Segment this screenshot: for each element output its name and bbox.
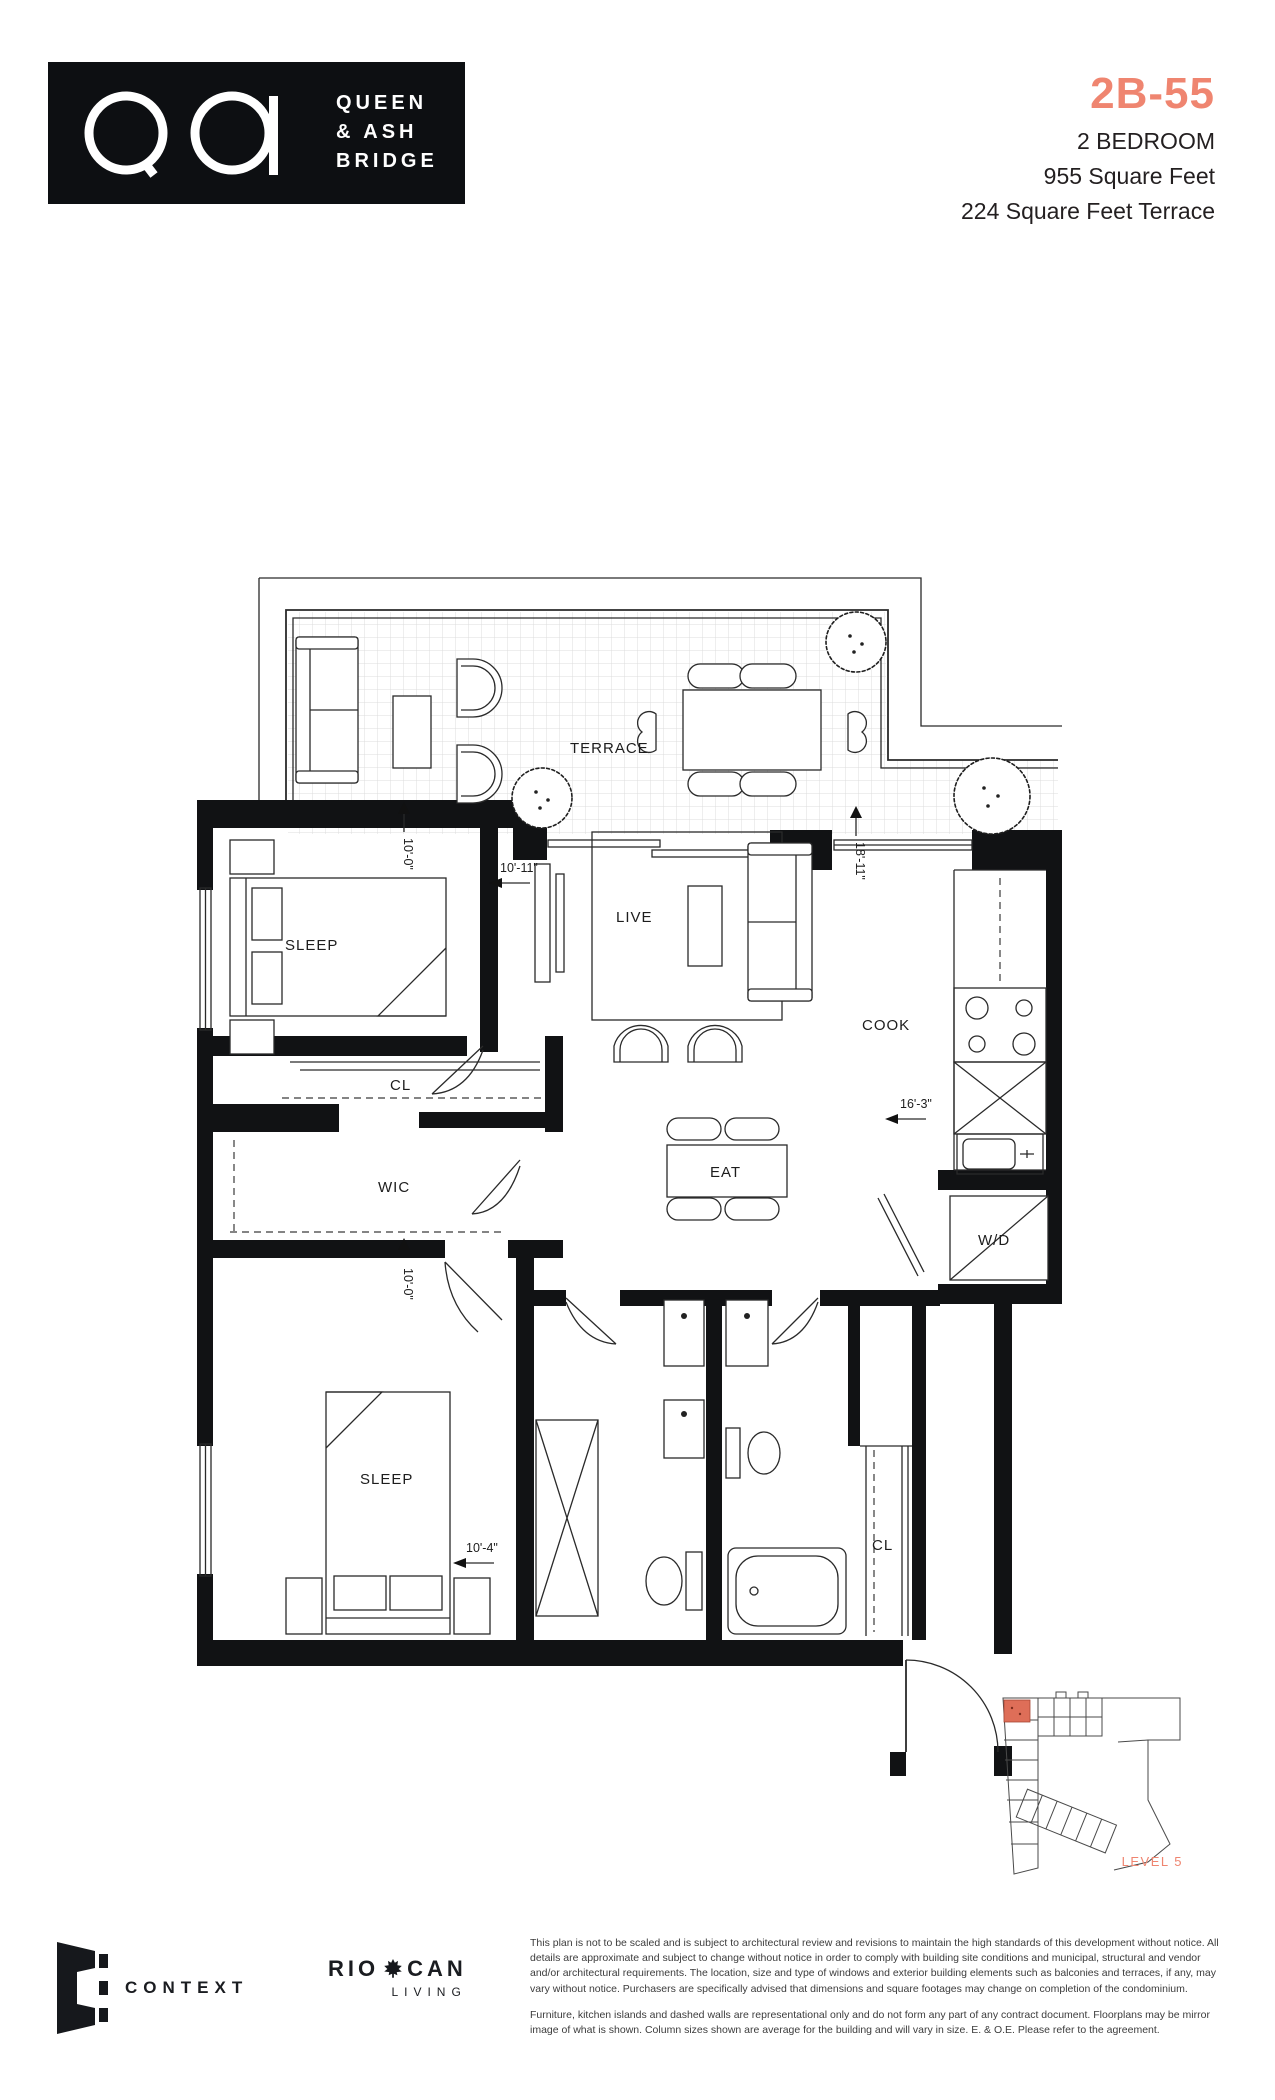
label-eat: EAT	[710, 1164, 741, 1181]
label-sleep2: SLEEP	[360, 1471, 413, 1488]
label-cl1: CL	[390, 1077, 411, 1094]
disclaimer-paragraph-2: Furniture, kitchen islands and dashed wa…	[530, 2008, 1220, 2038]
label-terrace: TERRACE	[570, 740, 649, 757]
disclaimer-paragraph-1: This plan is not to be scaled and is sub…	[530, 1936, 1220, 1997]
dim-sleep2-depth: 10'-4"	[466, 1541, 498, 1555]
dim-main-depth: 18'-11"	[853, 842, 867, 880]
floor-plan: 10'-0" 10'-11" 18'-11" 16'-3" 10'-0" 10'…	[0, 0, 1275, 2100]
riocan-rio: RIO	[328, 1956, 379, 1982]
label-wic: WIC	[378, 1179, 410, 1196]
maple-leaf-icon	[383, 1959, 403, 1979]
closets	[230, 1062, 545, 1332]
bedroom2-furniture	[286, 1392, 490, 1634]
floorplan-sheet: QUEEN & ASH BRIDGE 2B-55 2 BEDROOM 955 S…	[0, 0, 1275, 2100]
context-wordmark: CONTEXT	[125, 1978, 248, 1998]
level-label: LEVEL 5	[1122, 1854, 1183, 1869]
context-logo: CONTEXT	[55, 1942, 248, 2034]
kitchen	[878, 870, 1048, 1280]
disclaimer: This plan is not to be scaled and is sub…	[530, 1936, 1220, 2049]
label-cl2: CL	[872, 1537, 893, 1554]
label-wd: W/D	[978, 1232, 1010, 1249]
entry-door	[906, 1660, 998, 1752]
key-plan: LEVEL 5	[1003, 1692, 1183, 1874]
dim-sleep2-width: 10'-0"	[401, 1268, 415, 1300]
highlighted-unit	[1004, 1700, 1030, 1722]
dim-cook-depth: 16'-3"	[900, 1097, 932, 1111]
label-live: LIVE	[616, 909, 653, 926]
dim-live-width: 10'-11"	[500, 861, 538, 875]
riocan-living: LIVING	[328, 1985, 467, 1999]
riocan-logo: RIO CAN LIVING	[328, 1956, 467, 1999]
label-cook: COOK	[862, 1017, 910, 1034]
riocan-can: CAN	[407, 1956, 467, 1982]
label-sleep1: SLEEP	[285, 937, 338, 954]
dim-sleep1-width: 10'-0"	[401, 838, 415, 870]
living-furniture	[535, 832, 812, 1220]
context-mark-icon	[55, 1942, 109, 2034]
